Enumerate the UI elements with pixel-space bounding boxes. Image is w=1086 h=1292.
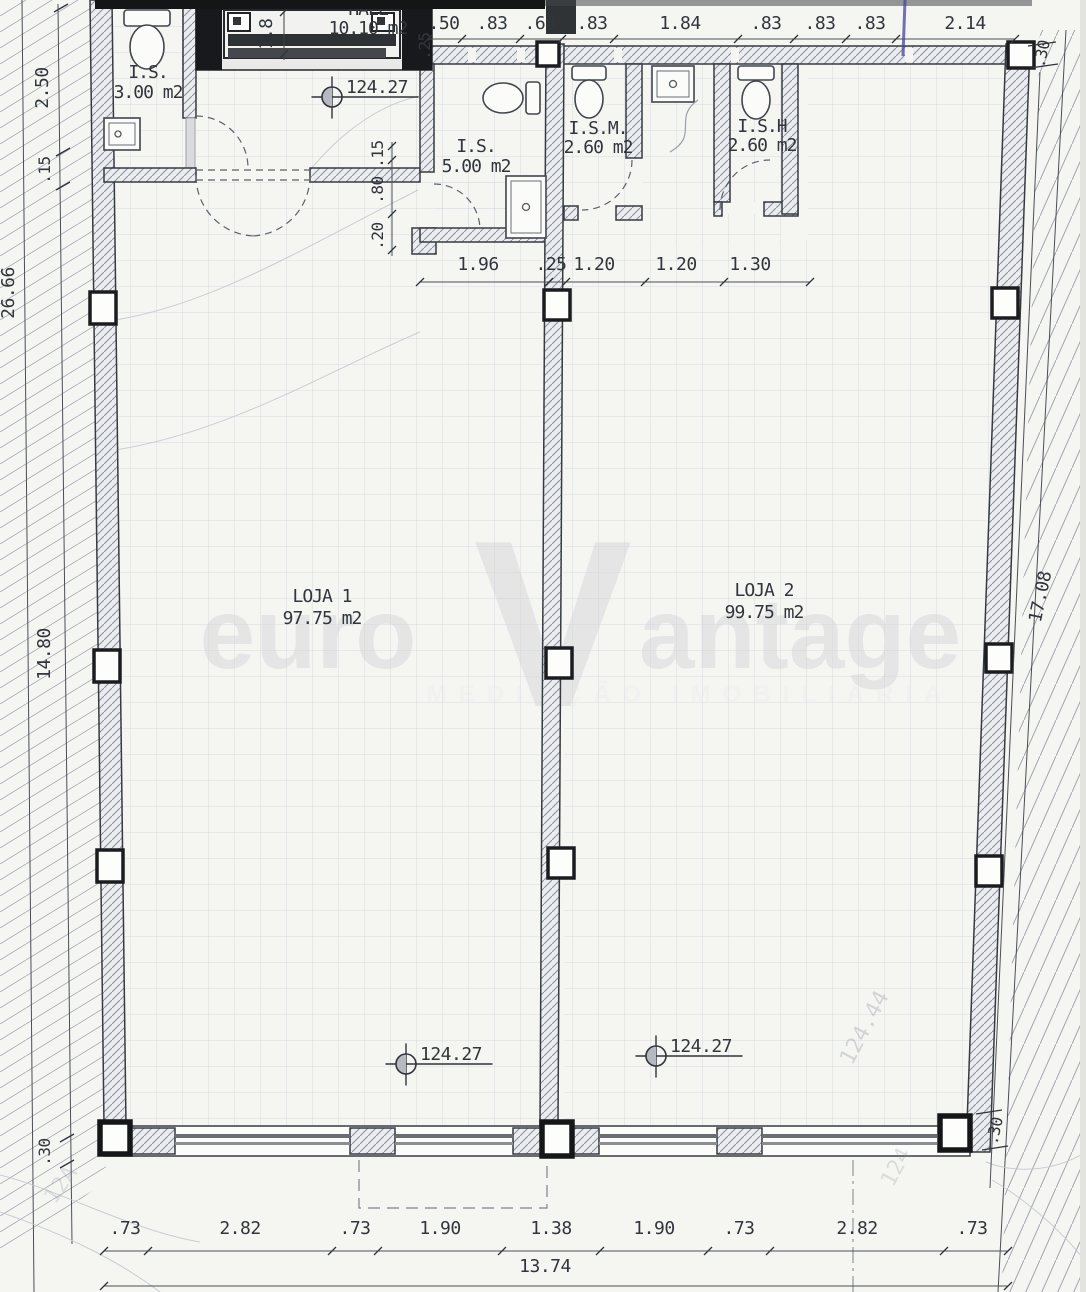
facade-pier <box>717 1128 762 1154</box>
room-label-loja2-area: 99.75 m2 <box>725 602 804 623</box>
dim-bottom-total: 13.74 <box>519 1256 571 1277</box>
column <box>546 648 572 678</box>
corner-column <box>542 1122 572 1156</box>
dim-mid-0: 1.96 <box>457 254 498 275</box>
column <box>544 290 570 320</box>
dim-bottom-5: 1.90 <box>633 1218 674 1239</box>
corner-column <box>100 1122 130 1154</box>
facade-pier <box>350 1128 395 1154</box>
room-label-is2-area: 5.00 m2 <box>442 156 511 177</box>
room-label-loja2-name: LOJA 2 <box>734 580 793 601</box>
elevator-door <box>228 48 386 58</box>
room-label-ish-name: I.S.H <box>737 116 786 137</box>
watermark-subtext: MEDIAÇÃO IMOBILIÁRIA <box>427 680 954 708</box>
room-label-ish-area: 2.60 m2 <box>728 135 797 156</box>
column <box>90 292 116 324</box>
room-label-ism-area: 2.60 m2 <box>564 137 633 158</box>
dim-top-3: .83 <box>576 13 607 34</box>
wall-ish-left <box>714 64 730 202</box>
wall-top-exterior <box>420 46 1014 64</box>
dim-top-0: .50 <box>428 13 459 34</box>
dim-top-4: 1.84 <box>659 13 700 34</box>
wall-is-center-left <box>420 64 434 172</box>
dim-bottom-6: .73 <box>723 1218 754 1239</box>
scan-edge-dark <box>95 0 545 9</box>
dim-bottom-2: .73 <box>339 1218 370 1239</box>
room-label-is2-name: I.S. <box>456 136 495 157</box>
scanned-floor-plan-page: V euro antage MEDIAÇÃO IMOBILIÁRIA <box>0 0 1086 1292</box>
pen-mark <box>903 0 905 56</box>
dim-top-5: .83 <box>750 13 781 34</box>
corner-column <box>940 1116 970 1150</box>
toilet-tank <box>124 10 170 26</box>
column <box>97 850 123 882</box>
dim-elevator: 1.8 <box>256 18 277 49</box>
room-label-is1-name: I.S. <box>128 62 167 83</box>
dim-left-bottom: .30 <box>35 1138 54 1165</box>
scan-edge-light <box>545 0 1032 6</box>
dim-top-6: .83 <box>804 13 835 34</box>
toilet <box>483 83 523 113</box>
toilet-tank <box>738 66 774 80</box>
dimension-door-stack: .15 .80 .20 <box>368 140 396 256</box>
dim-bottom-3: 1.90 <box>419 1218 460 1239</box>
dim-door-1: .80 <box>368 176 387 203</box>
dim-bottom-4: 1.38 <box>530 1218 571 1239</box>
column <box>986 644 1012 672</box>
watermark-right: antage <box>639 578 961 690</box>
column <box>537 42 559 66</box>
floor-plan-drawing: V euro antage MEDIAÇÃO IMOBILIÁRIA <box>0 0 1086 1292</box>
dim-top-1: .83 <box>476 13 507 34</box>
dim-bottom-1: 2.82 <box>219 1218 260 1239</box>
level-value: 124.27 <box>670 1036 732 1057</box>
room-label-hall-area: 10.10 m2 <box>329 18 408 39</box>
dim-bottom-8: .73 <box>956 1218 987 1239</box>
wall-pier <box>186 118 195 168</box>
scan-edge-right <box>1080 0 1086 1292</box>
dim-wall-thickness: .25 <box>415 32 434 59</box>
dim-door-2: .20 <box>368 222 387 249</box>
dim-top-8: 2.14 <box>944 13 985 34</box>
level-value: 124.27 <box>346 77 408 98</box>
toilet <box>742 81 770 119</box>
column <box>548 848 574 878</box>
wall-ism-bottom-b <box>616 206 642 220</box>
room-label-loja1-area: 97.75 m2 <box>283 608 362 629</box>
room-label-is1-area: 3.00 m2 <box>114 82 183 103</box>
dim-left-upper: 2.50 <box>32 67 53 108</box>
column <box>94 650 120 682</box>
dim-mid-3: 1.20 <box>655 254 696 275</box>
dim-bottom-7: 2.82 <box>836 1218 877 1239</box>
room-label-ism-name: I.S.M. <box>568 118 627 139</box>
level-value: 124.27 <box>420 1044 482 1065</box>
dim-mid-4: 1.30 <box>729 254 770 275</box>
room-label-loja1-name: LOJA 1 <box>292 586 351 607</box>
dim-top-2: .68 <box>524 13 555 34</box>
dim-bottom-0: .73 <box>109 1218 140 1239</box>
dim-left-loja: 14.80 <box>34 628 55 680</box>
storefront-wall <box>104 1126 970 1156</box>
wall-ism-bottom-a <box>564 206 578 220</box>
dim-mid-1: .25 <box>535 254 566 275</box>
shower-tray <box>506 176 546 238</box>
toilet-tank <box>572 66 606 80</box>
column <box>992 288 1018 318</box>
column <box>976 856 1002 886</box>
toilet-tank <box>526 82 540 114</box>
wall-hall-bottom-left <box>104 168 196 182</box>
dim-door-0: .15 <box>368 140 387 167</box>
dim-left-total: 26.66 <box>0 267 19 319</box>
wall-hall-bottom-right <box>310 168 420 182</box>
dim-top-7: .83 <box>854 13 885 34</box>
toilet <box>575 80 603 118</box>
facade-pier <box>130 1128 175 1154</box>
wall-is-partition <box>183 0 196 118</box>
dim-mid-2: 1.20 <box>573 254 614 275</box>
dim-left-upper-small: .15 <box>35 156 54 183</box>
